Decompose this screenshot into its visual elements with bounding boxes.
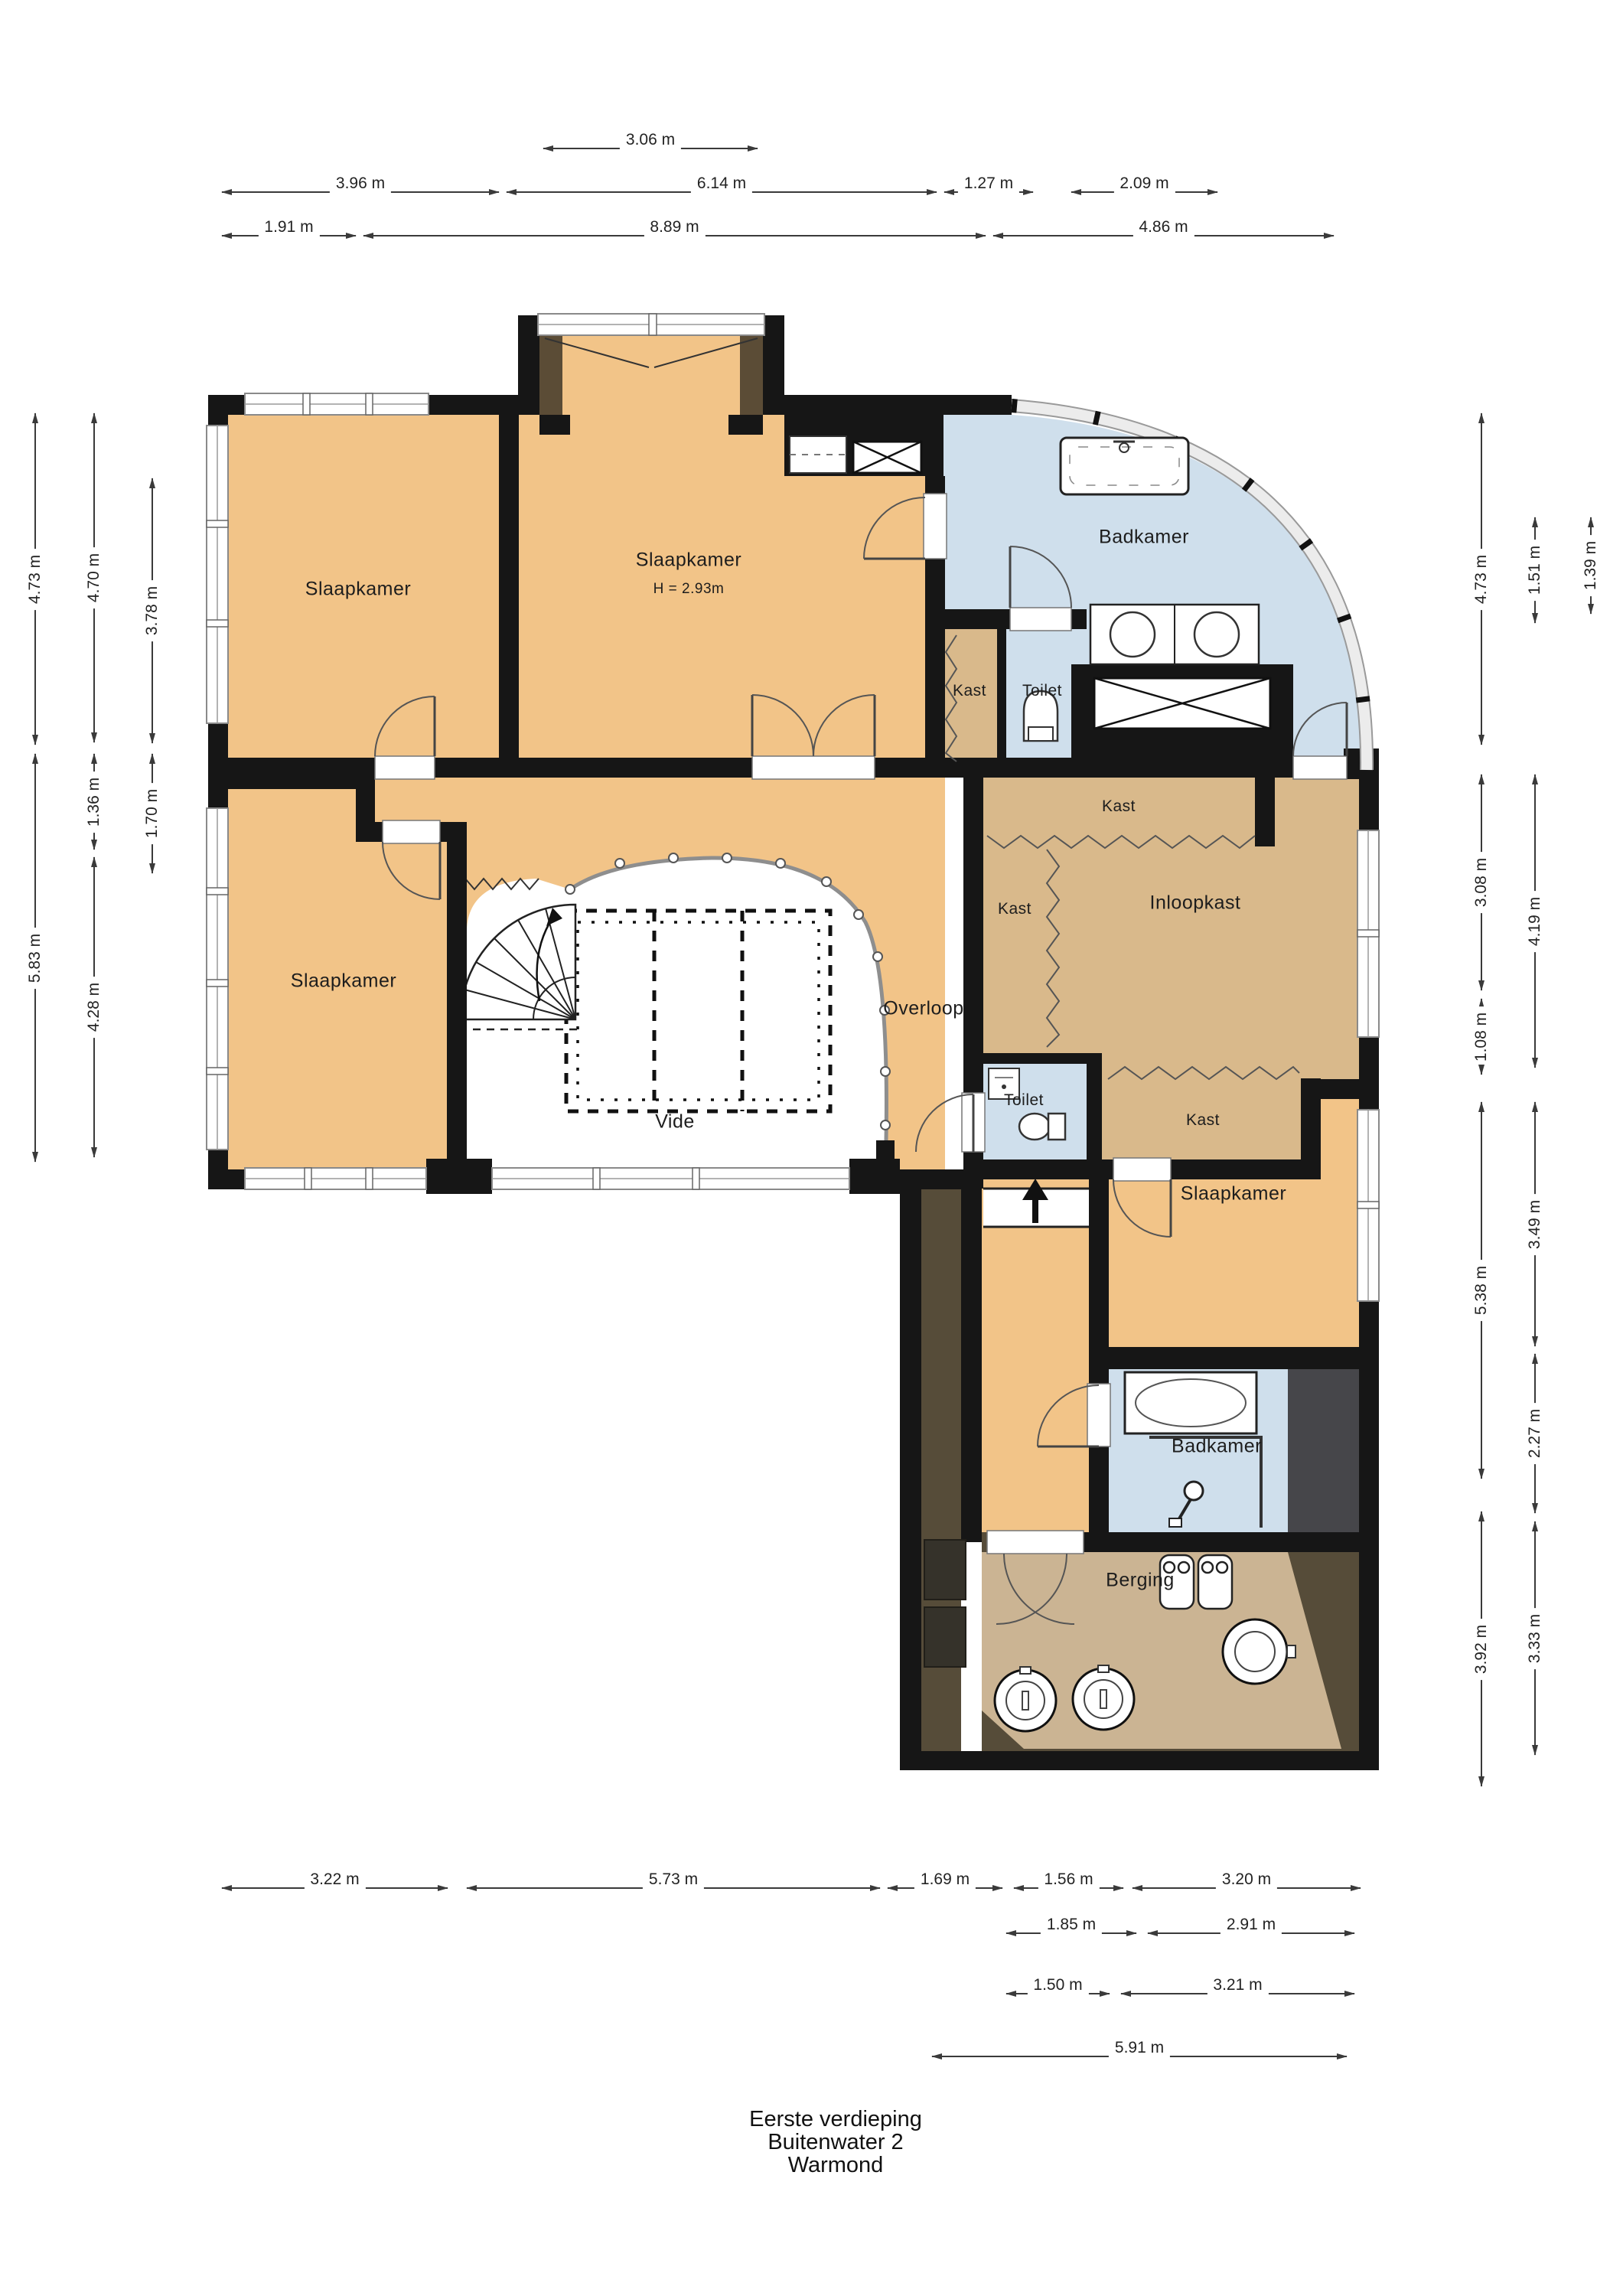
room-label-slaapkamer-tl: Slaapkamer	[305, 579, 411, 601]
dim-left-583: 5.83 m	[34, 754, 36, 1162]
dim-right-349: 3.49 m	[1534, 1102, 1536, 1346]
dim-bottom-591: 5.91 m	[932, 2056, 1347, 2057]
room-label-inloopkast: Inloopkast	[1150, 892, 1241, 915]
dim-right-538: 5.38 m	[1481, 1102, 1482, 1479]
dim-top-396: 3.96 m	[222, 191, 499, 193]
room-label-overloop: Overloop	[883, 998, 963, 1020]
dim-right-419: 4.19 m	[1534, 775, 1536, 1068]
toilet-icon-middle	[1019, 1114, 1065, 1140]
dim-bottom-321: 3.21 m	[1121, 1993, 1354, 1994]
double-sink-icon	[1090, 605, 1259, 664]
dim-right-139: 1.39 m	[1590, 517, 1592, 614]
plan-title-floor: Eerste verdieping	[749, 2108, 922, 2131]
room-label-vide: Vide	[655, 1111, 695, 1133]
vent-box-icon	[1094, 678, 1270, 729]
dim-right-473: 4.73 m	[1481, 413, 1482, 745]
dim-top-486: 4.86 m	[993, 235, 1334, 236]
room-label-kast-inloop-bottom: Kast	[1186, 1111, 1220, 1130]
dim-right-108: 1.08 m	[1481, 999, 1482, 1075]
dim-left-170: 1.70 m	[152, 754, 153, 873]
bathtub-icon	[1061, 438, 1188, 494]
dim-left-428: 4.28 m	[93, 857, 95, 1157]
room-label-slaapkamer-bl: Slaapkamer	[291, 970, 396, 993]
dim-left-136: 1.36 m	[93, 754, 95, 850]
dim-top-889: 8.89 m	[363, 235, 986, 236]
room-label-kast-top: Kast	[953, 682, 986, 700]
dim-top-127: 1.27 m	[944, 191, 1033, 193]
dim-left-470: 4.70 m	[93, 413, 95, 742]
room-label-slaapkamer-r: Slaapkamer	[1181, 1183, 1286, 1205]
room-label-badkamer-bottom: Badkamer	[1172, 1436, 1262, 1458]
room-label-toilet-mid: Toilet	[1004, 1091, 1044, 1110]
dim-bottom-573: 5.73 m	[467, 1887, 880, 1889]
dim-bottom-320: 3.20 m	[1133, 1887, 1361, 1889]
dim-top-209: 2.09 m	[1071, 191, 1217, 193]
floorplan-page: Slaapkamer Slaapkamer H = 2.93m Badkamer…	[0, 0, 1623, 2296]
dim-bottom-322: 3.22 m	[222, 1887, 448, 1889]
dim-right-333: 3.33 m	[1534, 1521, 1536, 1755]
dim-left-473: 4.73 m	[34, 413, 36, 745]
room-label-slaapkamer-tm: Slaapkamer	[636, 550, 741, 572]
duct-box-icon	[853, 442, 921, 473]
plan-title-address: Buitenwater 2	[768, 2131, 903, 2154]
room-label-slaapkamer-tm-height: H = 2.93m	[653, 581, 725, 598]
dim-bottom-185: 1.85 m	[1006, 1932, 1136, 1934]
floorplan-drawing	[0, 0, 1623, 2296]
room-label-kast-inloop-top: Kast	[1102, 797, 1136, 816]
dim-bottom-150: 1.50 m	[1006, 1993, 1110, 1994]
dim-right-308: 3.08 m	[1481, 775, 1482, 990]
dim-right-392: 3.92 m	[1481, 1512, 1482, 1786]
dim-right-151: 1.51 m	[1534, 517, 1536, 623]
room-label-badkamer-top: Badkamer	[1099, 527, 1189, 549]
dim-bottom-156: 1.56 m	[1014, 1887, 1123, 1889]
dim-top-614: 6.14 m	[507, 191, 937, 193]
shaft-window	[790, 436, 846, 473]
room-label-kast-inloop-left: Kast	[998, 900, 1031, 918]
dim-right-227: 2.27 m	[1534, 1354, 1536, 1513]
dim-top-191: 1.91 m	[222, 235, 356, 236]
room-label-berging: Berging	[1106, 1570, 1175, 1592]
room-label-toilet-top: Toilet	[1022, 682, 1062, 700]
dim-bottom-169: 1.69 m	[888, 1887, 1002, 1889]
dim-top-306: 3.06 m	[543, 148, 758, 149]
dim-left-378: 3.78 m	[152, 478, 153, 743]
dim-bottom-291: 2.91 m	[1148, 1932, 1354, 1934]
plan-title-city: Warmond	[788, 2154, 884, 2177]
bathtub-icon-bottom	[1125, 1372, 1256, 1433]
